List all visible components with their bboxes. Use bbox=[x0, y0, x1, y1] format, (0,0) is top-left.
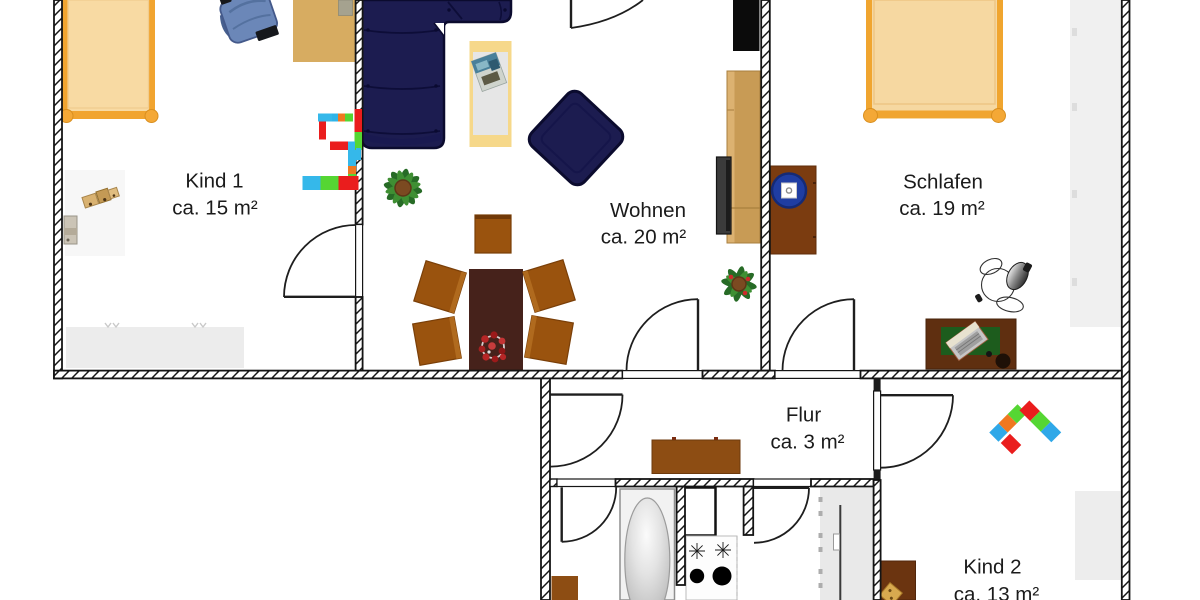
svg-text:ca. 3 m²: ca. 3 m² bbox=[770, 431, 844, 454]
svg-text:Kind 2: Kind 2 bbox=[963, 556, 1021, 579]
svg-text:Wohnen: Wohnen bbox=[610, 199, 686, 222]
svg-text:ca. 15 m²: ca. 15 m² bbox=[172, 197, 258, 220]
svg-text:Kind 1: Kind 1 bbox=[185, 170, 243, 193]
svg-text:ca. 13 m²: ca. 13 m² bbox=[954, 583, 1040, 600]
svg-text:ca. 20 m²: ca. 20 m² bbox=[601, 226, 687, 249]
svg-text:Schlafen: Schlafen bbox=[903, 171, 983, 194]
svg-text:Flur: Flur bbox=[786, 404, 821, 427]
svg-text:ca. 19 m²: ca. 19 m² bbox=[899, 197, 985, 220]
